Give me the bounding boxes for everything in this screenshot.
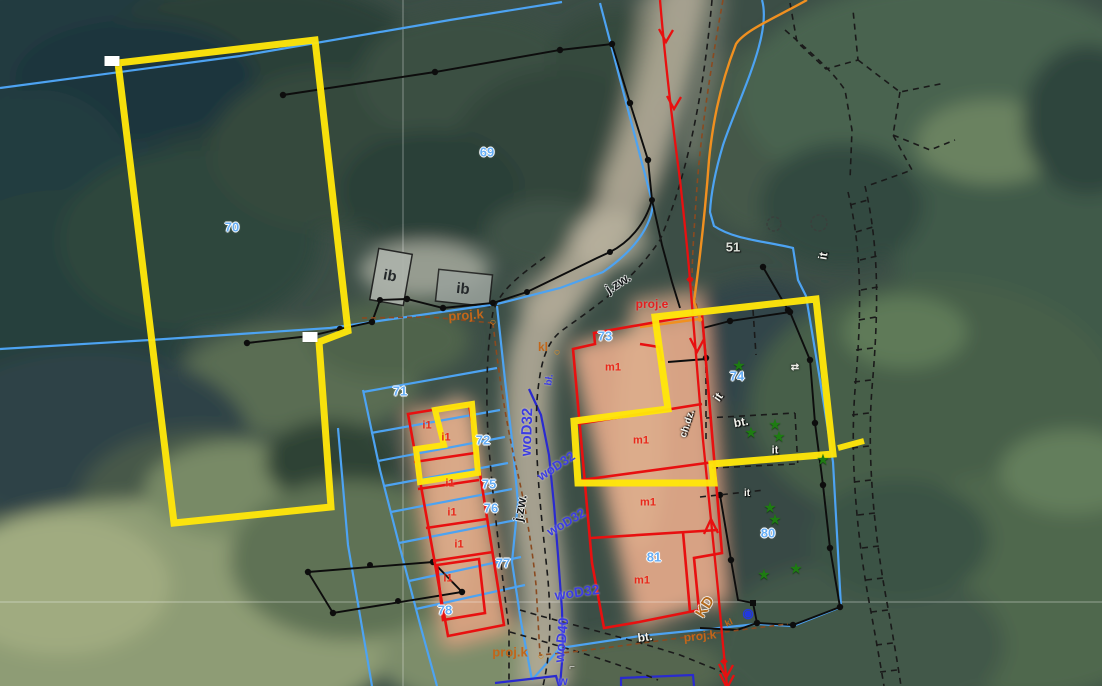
- map-label: bł.: [544, 374, 556, 387]
- map-label: w: [558, 675, 567, 686]
- map-label: it: [772, 446, 779, 457]
- white-square-icon: [303, 332, 318, 342]
- map-label: m1: [633, 436, 649, 447]
- white-square-icon: [105, 56, 120, 66]
- tree-icon: ★: [757, 568, 770, 583]
- map-canvas[interactable]: 69707172737475767778808151m1m1m1m1i1i1i1…: [0, 0, 1102, 686]
- map-label: i1: [441, 433, 450, 444]
- map-label: woD32: [519, 408, 536, 457]
- map-label: 70: [225, 221, 239, 234]
- map-label: m1: [605, 363, 621, 374]
- map-label: KD: [693, 594, 717, 620]
- manhole-icon: ⌐: [569, 663, 575, 673]
- map-label: i1: [445, 479, 454, 490]
- map-label: it: [816, 251, 829, 260]
- orange-node-icon: ○: [490, 318, 497, 329]
- utility-circle-icon: ◉: [742, 607, 753, 620]
- red-diamond-icon: ◆: [686, 275, 694, 285]
- manhole-icon: ⇄: [791, 363, 799, 373]
- map-label: i1: [422, 421, 431, 432]
- map-label: ib: [382, 267, 398, 284]
- map-label: proj.k: [448, 307, 484, 322]
- map-label: bt.: [637, 630, 653, 644]
- map-label: kl: [538, 341, 548, 353]
- tree-icon: ★: [744, 426, 757, 441]
- map-label: woD32: [535, 449, 577, 483]
- map-label: 71: [393, 385, 407, 398]
- tree-icon: ★: [768, 513, 781, 528]
- map-label: it: [711, 391, 725, 404]
- map-label: 78: [438, 604, 452, 617]
- map-label: proj.k: [492, 646, 527, 659]
- map-annotations: 69707172737475767778808151m1m1m1m1i1i1i1…: [0, 0, 1102, 686]
- orange-node-icon: ○: [538, 652, 545, 663]
- tree-icon: ★: [772, 430, 785, 445]
- map-label: 77: [496, 557, 510, 570]
- map-label: it: [744, 489, 750, 499]
- map-label: 81: [647, 551, 661, 564]
- map-label: 73: [598, 330, 612, 343]
- map-label: 69: [480, 146, 494, 159]
- map-label: 72: [476, 434, 490, 447]
- map-label: 75: [482, 478, 496, 491]
- map-label: 76: [484, 502, 498, 515]
- tree-icon: ★: [816, 453, 829, 468]
- map-label: ib: [456, 281, 471, 297]
- map-label: ch.dz.: [679, 409, 697, 439]
- map-label: m1: [634, 576, 650, 587]
- map-label: m1: [640, 498, 656, 509]
- orange-dot-icon: ●: [697, 315, 704, 326]
- orange-node-icon: ○: [554, 348, 561, 359]
- map-label: i1: [447, 508, 456, 519]
- tree-icon: ★: [732, 359, 745, 374]
- map-label: i1: [454, 540, 463, 551]
- map-label: woD32: [554, 582, 601, 602]
- tree-icon: ★: [789, 562, 802, 577]
- map-label: woD32: [545, 506, 588, 538]
- map-label: proj.k: [683, 628, 717, 643]
- map-label: i1: [443, 574, 452, 585]
- map-label: j.zw.: [603, 270, 633, 295]
- map-label: j.zw.: [511, 494, 528, 523]
- red-diamond-icon: ◆: [720, 657, 728, 667]
- map-label: proj.e: [636, 298, 669, 310]
- map-label: 51: [726, 241, 740, 254]
- map-label: kl: [724, 617, 735, 628]
- map-label: woD40: [552, 617, 571, 663]
